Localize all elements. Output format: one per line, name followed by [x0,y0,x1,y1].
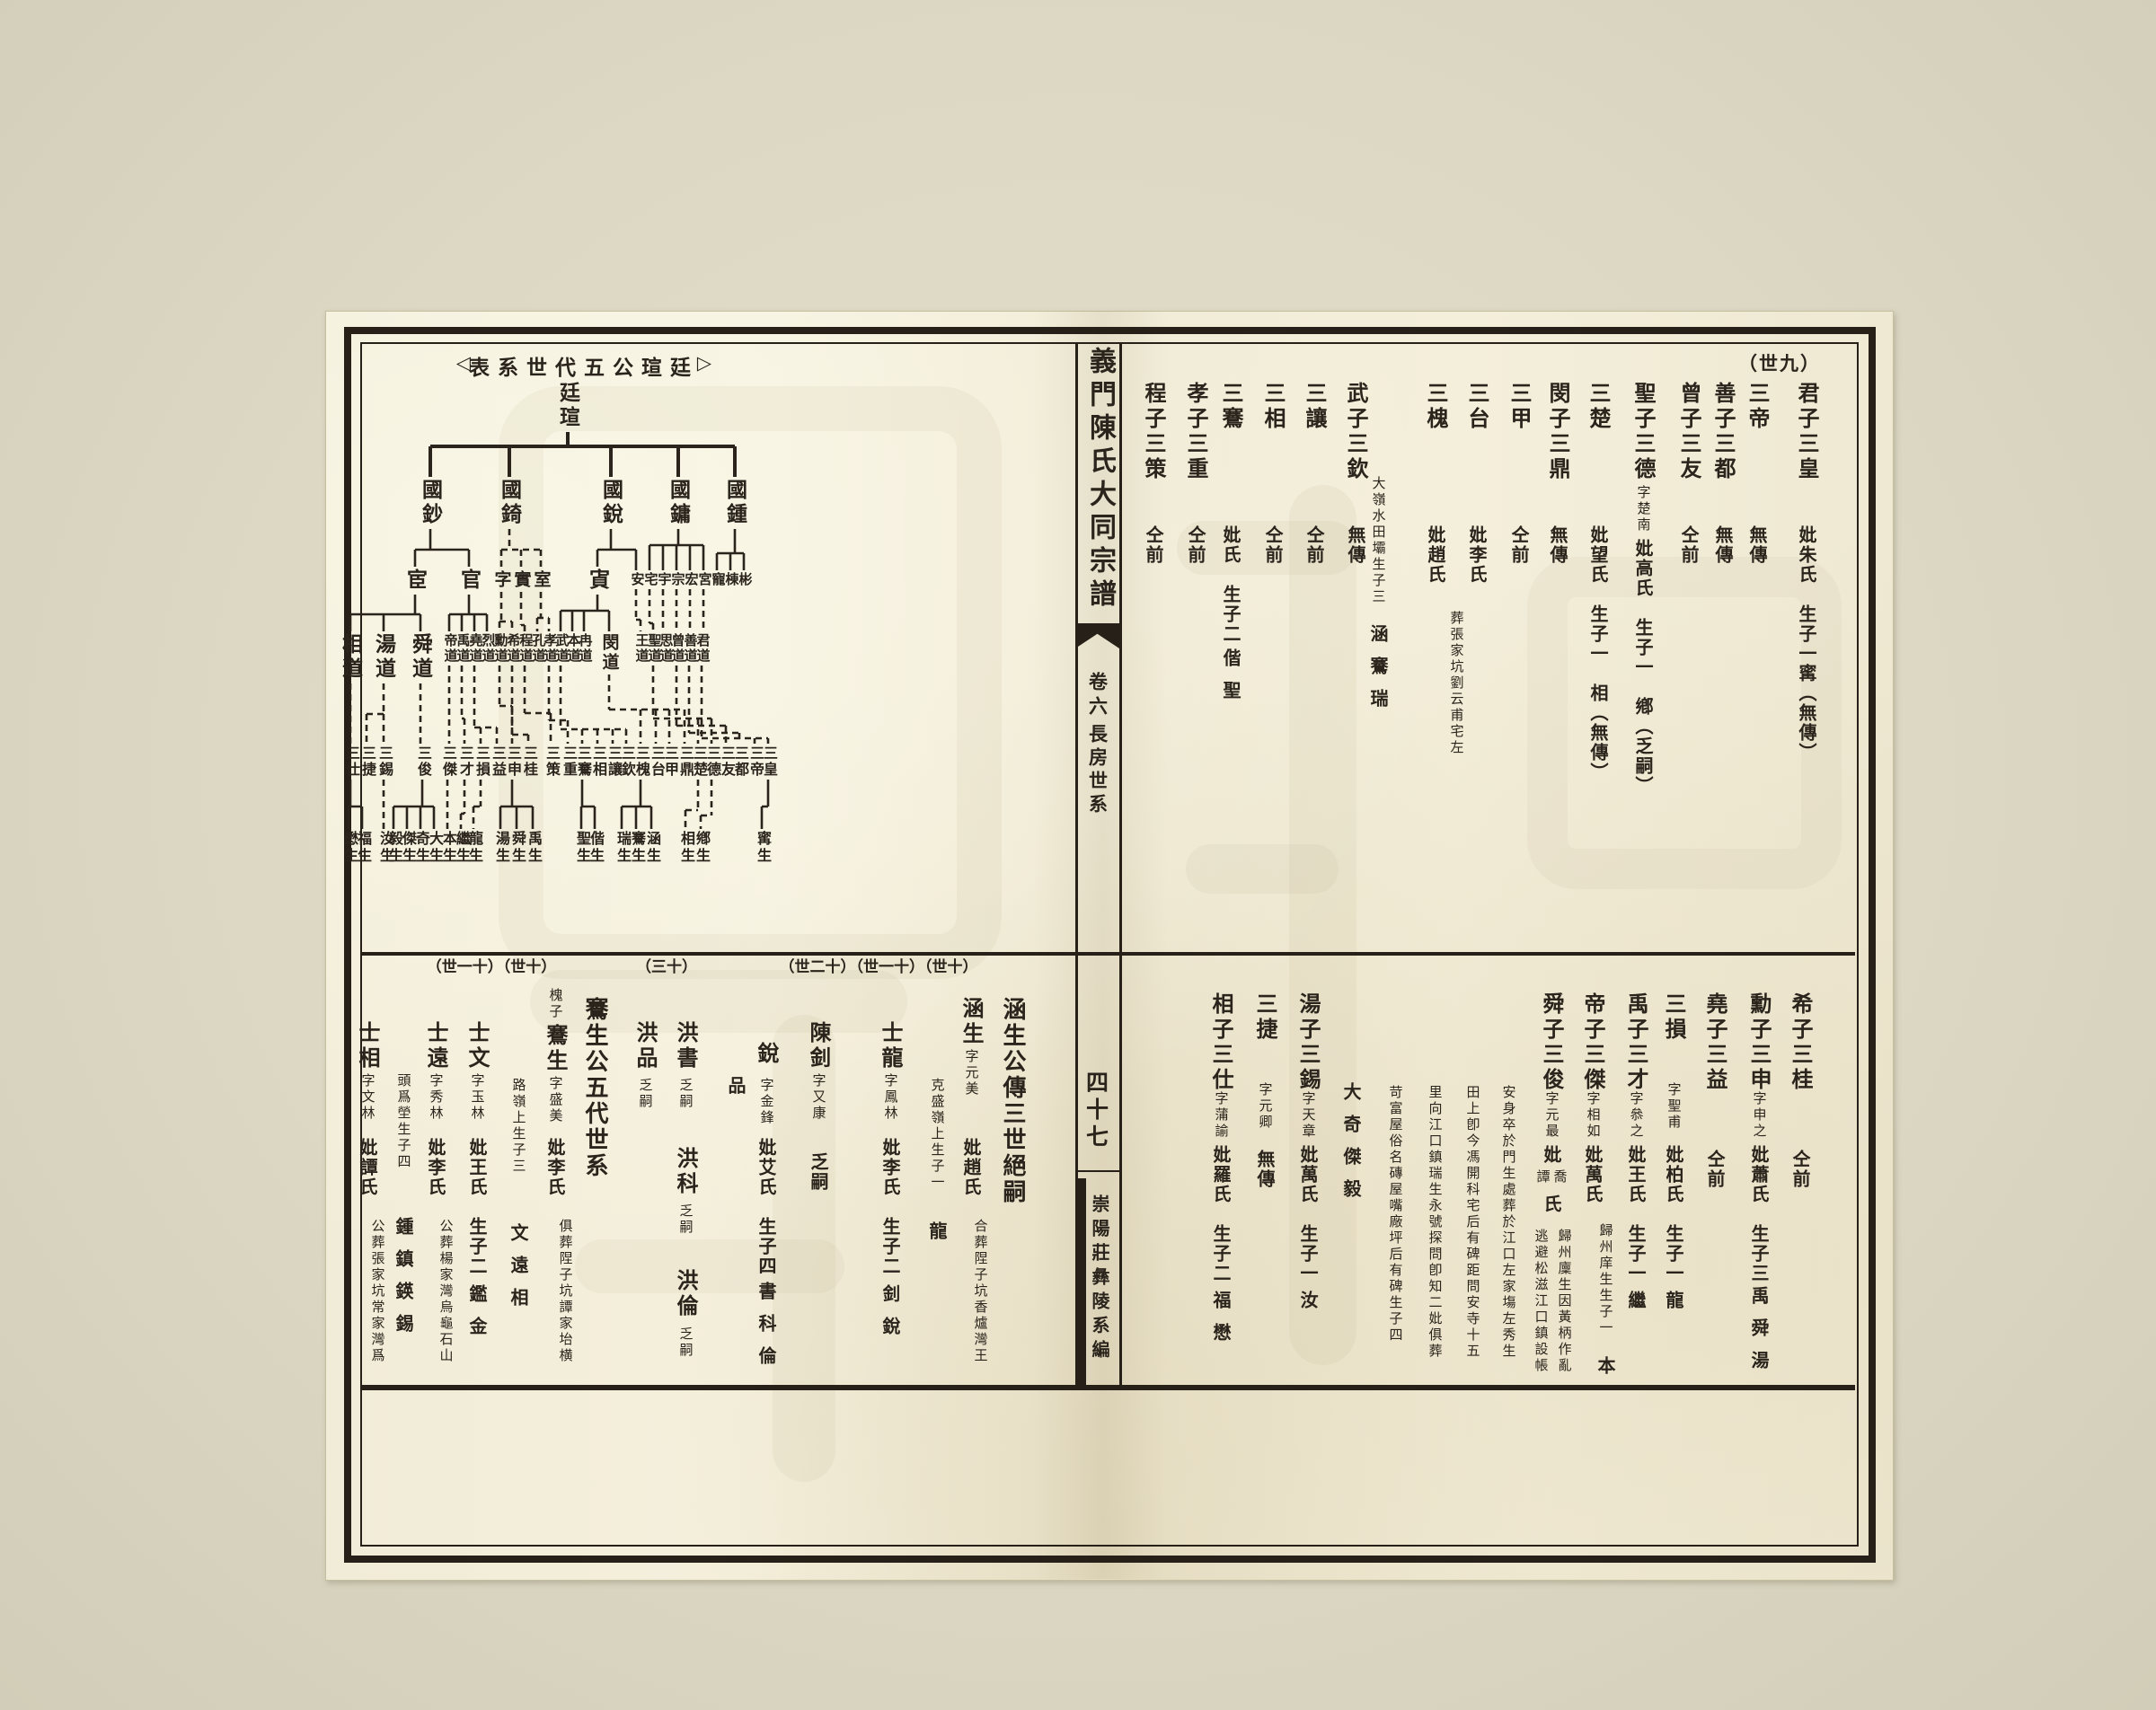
generation-header: （三十） [636,954,697,976]
scanned-genealogy-page: 義門陳氏大同宗譜 卷六 長房世系 四十七 崇陽莊彝陵系編 （世九） ◁ 表系世代… [0,0,2156,1710]
generation-headers: （世二十）（世一十）（世十）（三十）（世一十）（世十） [0,0,2156,1710]
generation-header: （世一十）（世十） [427,954,557,976]
generation-header: （世二十）（世一十）（世十） [780,954,978,976]
